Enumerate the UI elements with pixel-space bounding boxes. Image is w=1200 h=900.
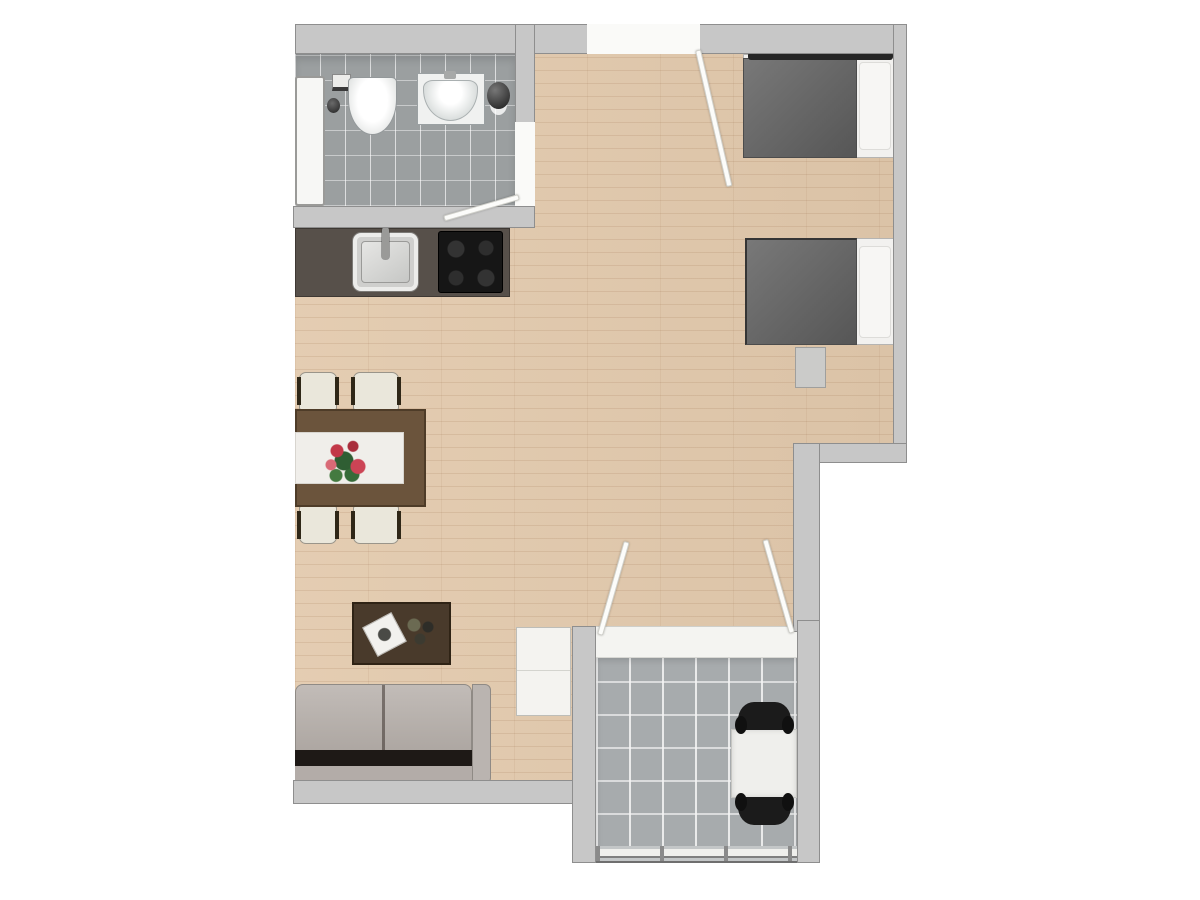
bed-1-pillow	[859, 62, 891, 150]
bed-2-pillow	[859, 246, 891, 338]
wall-right	[893, 24, 907, 463]
bedside-stool	[795, 347, 826, 388]
wall-mid-right-vertical	[793, 443, 820, 632]
balcony-chair-bottom	[738, 797, 791, 825]
entrance-door-opening	[587, 24, 700, 54]
dining-chair-top-left	[299, 372, 337, 410]
balcony-door-threshold	[596, 626, 797, 658]
wall-bathroom-bottom	[293, 206, 535, 228]
wall-bottom	[293, 780, 587, 804]
dark-vessel-sink	[487, 82, 510, 109]
cooktop	[438, 231, 503, 293]
sofa-cushions	[295, 684, 472, 750]
dining-chair-bottom-left	[299, 506, 337, 544]
sofa-armrest	[472, 684, 491, 784]
kitchen-faucet	[382, 227, 389, 259]
washbasin-faucet	[444, 71, 456, 79]
balcony-table	[731, 729, 797, 798]
bed-2-duvet	[745, 238, 857, 345]
side-cabinet	[516, 627, 571, 716]
floor-plan	[0, 0, 1200, 900]
wall-balcony-right	[797, 620, 820, 863]
balcony-railing	[596, 846, 797, 863]
toilet-brush-holder	[327, 98, 340, 113]
flower-bouquet	[322, 434, 372, 490]
wall-balcony-left	[572, 626, 596, 863]
coffee-table-decor	[405, 617, 435, 647]
bathroom-door-opening	[515, 122, 535, 206]
bed-1-duvet	[743, 58, 857, 158]
bathtub	[295, 76, 325, 206]
sofa-back-gap	[295, 750, 472, 766]
dining-chair-bottom-right	[353, 506, 399, 544]
balcony-chair-top	[738, 702, 791, 730]
dining-chair-top-right	[353, 372, 399, 410]
